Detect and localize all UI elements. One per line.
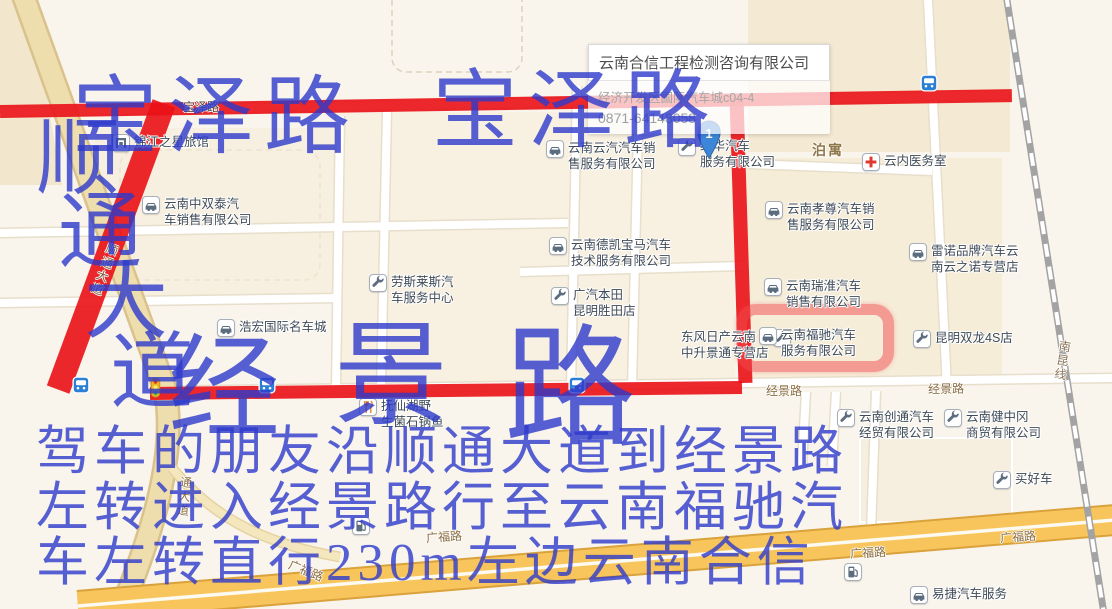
dekai-bmw-car-icon <box>549 237 567 255</box>
bus-stop-4-bus-icon <box>920 74 938 92</box>
bus-stop-1-bus-icon <box>72 376 90 394</box>
poi-haohong-mall[interactable]: 浩宏国际名车城 <box>217 319 327 337</box>
poi-maihaoche[interactable]: 买好车 <box>993 471 1053 489</box>
poi-label-haohong-mall: 浩宏国际名车城 <box>239 319 327 335</box>
guangfu-road-label-1: 广福路 <box>286 556 326 585</box>
poi-dekai-bmw[interactable]: 云南德凯宝马汽车技术服务有限公司 <box>549 237 671 270</box>
jingjing-road-label-2: 经景路 <box>928 380 964 398</box>
yunqi-auto-car-icon <box>546 140 564 158</box>
ruihuai-auto-car-icon <box>764 278 782 296</box>
jinjiang-hotel-hotel-icon <box>112 134 130 152</box>
poi-label-ruihuai-auto: 云南瑞淮汽车销售有限公司 <box>786 278 861 311</box>
poi-chuangtong-auto[interactable]: 云南创通汽车经贸有限公司 <box>837 409 934 442</box>
info-popup[interactable]: 云南合信工程检测咨询有限公司 经济开发区国际汽车城c04-4 0871-6414… <box>588 44 830 134</box>
poi-gas-station-1[interactable] <box>352 517 370 535</box>
poi-bus-stop-2[interactable] <box>258 376 276 394</box>
popup-phone: 0871-64148058 <box>598 110 820 126</box>
poi-label-shuanglong-4s: 昆明双龙4S店 <box>935 330 1013 346</box>
shuanglong-4s-wrench-icon <box>913 330 931 348</box>
popup-company-title: 云南合信工程检测咨询有限公司 <box>588 44 830 81</box>
poi-layer: 泊寓 锦江之星旅馆云南中双泰汽车销售有限公司云南云汽汽车销售服务有限公司经华汽车… <box>0 0 1112 609</box>
chuangtong-auto-wrench-icon <box>837 409 855 427</box>
maihaoche-wrench-icon <box>993 471 1011 489</box>
zhongshuangtai-auto-car-icon <box>142 196 160 214</box>
traffic-light-1-light-icon <box>150 377 161 398</box>
shuntong-road-label: 顺通大道 <box>87 241 122 299</box>
poi-bus-stop-4[interactable] <box>920 74 938 92</box>
jianzhonggang-trade-wrench-icon <box>944 409 962 427</box>
poi-fuchi-auto[interactable]: 云南福驰汽车服务有限公司 <box>759 327 856 360</box>
poi-yunqi-auto[interactable]: 云南云汽汽车销售服务有限公司 <box>546 140 656 173</box>
map-screenshot: 泊寓 锦江之星旅馆云南中双泰汽车销售有限公司云南云汽汽车销售服务有限公司经华汽车… <box>0 0 1112 609</box>
poi-label-yunqi-auto: 云南云汽汽车销售服务有限公司 <box>568 140 656 173</box>
poi-bus-stop-3[interactable] <box>568 376 586 394</box>
poi-jinghua-auto[interactable]: 经华汽车服务有限公司 <box>678 138 775 171</box>
poi-zhongshuangtai-auto[interactable]: 云南中双泰汽车销售有限公司 <box>142 196 252 229</box>
poi-shuanglong-4s[interactable]: 昆明双龙4S店 <box>913 330 1013 348</box>
poi-label-jianzhonggang-trade: 云南健中冈商贸有限公司 <box>966 409 1041 442</box>
poi-label-fuchi-auto: 云南福驰汽车服务有限公司 <box>781 327 856 360</box>
poi-label-gac-honda: 广汽本田昆明胜田店 <box>573 287 636 320</box>
poi-label-dongfeng-nissan: 东风日产云南中升景通专营店 <box>681 329 769 362</box>
poi-leinuo-renault[interactable]: 雷诺品牌汽车云南云之诺专营店 <box>909 243 1019 276</box>
area-label-boyu: 泊寓 <box>812 140 844 160</box>
leinuo-renault-car-icon <box>909 243 927 261</box>
fuchi-auto-car-icon <box>759 327 777 345</box>
bus-stop-3-bus-icon <box>568 376 586 394</box>
xiaozun-auto-car-icon <box>765 201 783 219</box>
poi-label-yijie-service: 易捷汽车服务 <box>932 586 1007 602</box>
yijie-service-car-icon <box>910 586 928 604</box>
haohong-mall-car-icon <box>217 319 235 337</box>
baoze-road-label: 宝泽路 <box>183 98 219 115</box>
poi-label-jinjiang-hotel: 锦江之星旅馆 <box>134 134 209 150</box>
poi-rolls-royce-center[interactable]: 劳斯莱斯汽车服务中心 <box>369 274 454 307</box>
poi-fuxianhu-restaurant[interactable]: 抚仙湖野生菌石锅鱼 <box>359 398 444 431</box>
fuxianhu-restaurant-fork-icon <box>359 398 377 416</box>
guangfu-road-label-4: 广福路 <box>999 527 1036 546</box>
poi-ruihuai-auto[interactable]: 云南瑞淮汽车销售有限公司 <box>764 278 861 311</box>
poi-label-leinuo-renault: 雷诺品牌汽车云南云之诺专营店 <box>931 243 1019 276</box>
poi-jianzhonggang-trade[interactable]: 云南健中冈商贸有限公司 <box>944 409 1041 442</box>
poi-label-yunnei-clinic: 云内医务室 <box>884 153 947 169</box>
poi-gac-honda[interactable]: 广汽本田昆明胜田店 <box>551 287 636 320</box>
shuntong-south-label: 通大道 <box>174 475 195 519</box>
poi-label-maihaoche: 买好车 <box>1015 471 1053 487</box>
guangfu-road-label-3: 广福路 <box>850 543 887 562</box>
jinghua-auto-wrench-icon <box>678 138 696 156</box>
poi-label-zhongshuangtai-auto: 云南中双泰汽车销售有限公司 <box>164 196 252 229</box>
poi-traffic-light-1[interactable] <box>150 377 161 398</box>
poi-jinjiang-hotel[interactable]: 锦江之星旅馆 <box>112 134 209 152</box>
poi-bus-stop-1[interactable] <box>72 376 90 394</box>
poi-label-chuangtong-auto: 云南创通汽车经贸有限公司 <box>859 409 934 442</box>
gac-honda-wrench-icon <box>551 287 569 305</box>
poi-label-rolls-royce-center: 劳斯莱斯汽车服务中心 <box>391 274 454 307</box>
poi-yunnei-clinic[interactable]: 云内医务室 <box>862 153 947 171</box>
popup-address: 经济开发区国际汽车城c04-4 <box>598 87 820 106</box>
gas-station-1-gas-icon <box>352 517 370 535</box>
poi-label-xiaozun-auto: 云南孝尊汽车销售服务有限公司 <box>787 201 875 234</box>
poi-yijie-service[interactable]: 易捷汽车服务 <box>910 586 1007 604</box>
popup-body: 经济开发区国际汽车城c04-4 0871-64148058 <box>588 81 830 134</box>
nankun-railway-label: 南昆线 <box>1051 339 1074 383</box>
bus-stop-2-bus-icon <box>258 376 276 394</box>
guangfu-road-label-2: 广福路 <box>425 527 462 546</box>
jingjing-road-label-1: 经景路 <box>766 382 802 399</box>
poi-label-dekai-bmw: 云南德凯宝马汽车技术服务有限公司 <box>571 237 671 270</box>
rolls-royce-center-wrench-icon <box>369 274 387 292</box>
gas-station-2-gas-icon <box>844 563 862 581</box>
poi-gas-station-2[interactable] <box>844 563 862 581</box>
poi-label-fuxianhu-restaurant: 抚仙湖野生菌石锅鱼 <box>381 398 444 431</box>
yunnei-clinic-cross-icon <box>862 153 880 171</box>
poi-xiaozun-auto[interactable]: 云南孝尊汽车销售服务有限公司 <box>765 201 875 234</box>
